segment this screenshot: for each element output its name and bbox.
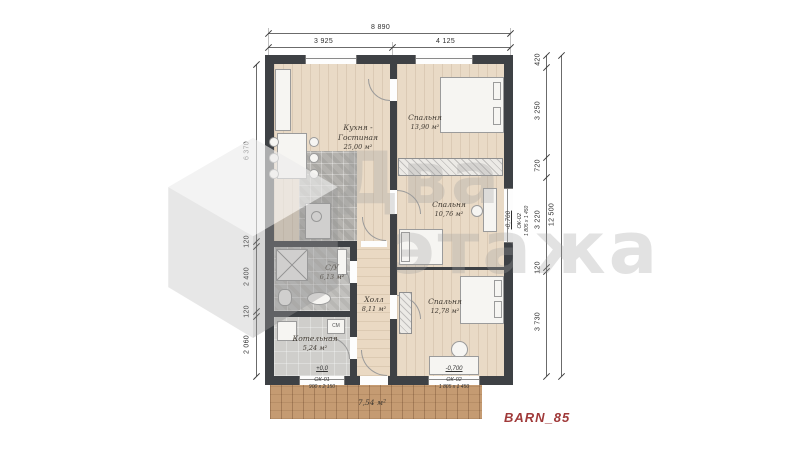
pillow-icon [493,82,501,100]
door-gap-bedroom2 [390,190,397,214]
desk-icon [483,188,497,232]
dim-tick [253,373,260,380]
room-area: 12,78 м² [413,307,477,315]
room-label-bathroom: С/У 6,13 м² [307,263,357,281]
dim-right-5: 3 730 [535,302,542,342]
dim-top-left: 3 925 [314,38,333,45]
washbasin-icon [307,292,331,305]
window-code: ОК-01 [292,377,352,384]
room-label-bedroom2: Спальня 10,76 м² [417,200,481,218]
dim-right-total: 12 500 [549,195,556,235]
room-label-bedroom3: Спальня 12,78 м² [413,297,477,315]
level-mark-right: -0,700 [506,202,512,238]
terrace-area-label: 7,54 м² [352,398,392,408]
dim-right-0: 420 [535,40,542,80]
toilet-icon [278,289,292,306]
pillow-icon [493,107,501,125]
floor-plan-canvas: 8 890 3 925 4 125 6 370 120 2 400 120 2 … [0,0,800,450]
window-label-ok01: ОК-01 900 х 2 150 [292,377,352,391]
dim-tick [558,373,565,380]
window-size: 1 805 х 1 450 [421,384,487,391]
dim-line-top-segments [268,47,510,48]
dim-right-4: 120 [535,248,542,288]
dining-table-icon [277,133,307,179]
dim-line-right-inner [546,55,547,376]
room-label-hall: Холл 8,11 м² [352,295,396,313]
pillow-icon [494,280,502,297]
chair-icon [309,153,319,163]
room-area: 8,11 м² [352,305,396,313]
dim-left-0: 6 370 [244,131,251,171]
room-name: С/У [307,263,357,273]
door-gap-bedroom1 [390,79,397,101]
entry-door-gap [360,376,388,385]
room-name: Холл [352,295,396,305]
dim-left-1: 120 [244,222,251,262]
dim-right-3: 3 220 [535,200,542,240]
room-area: 25,00 м² [320,143,396,151]
window-code: ОК-02 [421,377,487,384]
dim-line-top-total [268,33,510,34]
washing-machine-label: СМ [328,323,344,329]
sink-icon [311,211,322,222]
window-label-ok02-right: ОК-02 1 805 х 1 450 [517,194,531,248]
room-area: 13,90 м² [395,123,455,131]
pillow-icon [401,232,410,262]
chair-icon [269,153,279,163]
level-mark-terrace: -0,700 [432,366,476,372]
room-name: Кухня - [320,123,396,133]
level-mark-entry: +0,0 [300,366,344,372]
room-label-bedroom1: Спальня 13,90 м² [395,113,455,131]
chair-icon [309,137,319,147]
dim-right-1: 3 250 [535,91,542,131]
shower-icon [276,249,308,281]
dim-right-2: 720 [535,146,542,186]
room-name: Спальня [413,297,477,307]
room-label-kitchen: Кухня - Гостиная 25,00 м² [320,123,396,151]
dim-left-4: 2 060 [244,325,251,365]
window-label-ok02: ОК-02 1 805 х 1 450 [421,377,487,391]
room-area: 5,24 м² [277,344,353,352]
wardrobe-icon [398,158,503,176]
dim-top-right: 4 125 [436,38,455,45]
project-title: BARN_85 [504,410,570,425]
room-name: Гостиная [320,133,396,143]
chair-icon [269,137,279,147]
dim-top-total: 8 890 [371,24,390,31]
dim-line-right-outer [561,55,562,376]
room-label-boiler: Котельная 5,24 м² [277,334,353,352]
dim-line-left [256,64,257,376]
room-name: Котельная [277,334,353,344]
room-name: Спальня [395,113,455,123]
chair-icon [309,169,319,179]
window-bedroom1-top [415,55,473,64]
washing-machine-icon: СМ [327,319,345,334]
room-area: 10,76 м² [417,210,481,218]
wardrobe-icon [399,292,412,334]
dim-left-2: 2 400 [244,257,251,297]
pillow-icon [494,301,502,318]
window-code: ОК-02 [517,194,524,248]
door-gap-kitchen-hall [361,241,387,247]
room-area: 6,13 м² [307,273,357,281]
building-plan: СМ Кухня - Гостиная 25,00 м² Спальня 13,… [265,55,513,385]
chair-icon [269,169,279,179]
kitchen-counter-icon [275,69,291,131]
window-size: 1 805 х 1 450 [524,194,531,248]
window-kitchen-top [305,55,357,64]
window-size: 900 х 2 150 [292,384,352,391]
dim-tick [543,373,550,380]
room-name: Спальня [417,200,481,210]
